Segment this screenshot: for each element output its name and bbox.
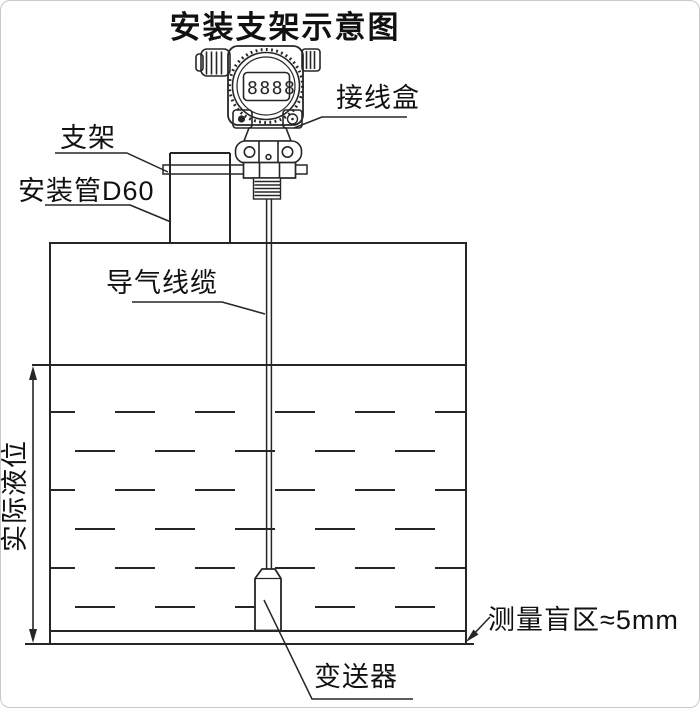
label-transmitter: 变送器 xyxy=(314,663,398,693)
tank-outline xyxy=(25,243,474,644)
label-bracket: 支架 xyxy=(60,124,116,154)
transmitter-head: 8888 xyxy=(196,46,320,199)
leader-junction-box xyxy=(294,117,407,128)
label-mounting-pipe: 安装管D60 xyxy=(18,177,155,207)
hex-nut xyxy=(244,163,296,179)
leader-air-cable xyxy=(132,302,265,314)
side-connector-icon xyxy=(302,49,320,71)
display-digits: 8888 xyxy=(247,78,296,99)
blind-zone-arrow xyxy=(466,617,490,642)
cable-gland-icon xyxy=(196,49,230,76)
label-junction-box: 接线盒 xyxy=(336,84,420,114)
page-title: 安装支架示意图 xyxy=(140,2,430,47)
label-actual-level: 实际液位 xyxy=(1,431,31,561)
installation-diagram: 8888 xyxy=(0,0,700,708)
process-flange xyxy=(236,141,302,163)
leader-bracket xyxy=(55,153,168,172)
neck xyxy=(244,128,291,141)
mounting-pipe xyxy=(170,153,230,243)
label-air-cable: 导气线缆 xyxy=(106,269,218,299)
probe-body xyxy=(255,569,281,631)
air-guide-cable xyxy=(267,199,272,570)
label-blind-zone: 测量盲区≈5mm xyxy=(488,606,679,636)
leader-mounting-pipe xyxy=(45,205,171,222)
threaded-stub xyxy=(254,178,281,199)
